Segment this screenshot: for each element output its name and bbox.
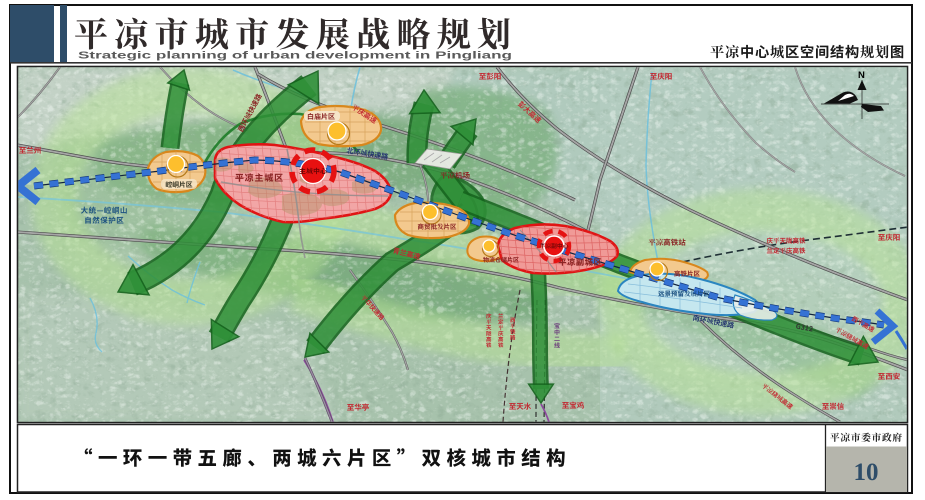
svg-text:10: 10 [854, 459, 879, 486]
svg-text:Strategic planning of urban de: Strategic planning of urban development … [78, 50, 512, 62]
svg-text:N: N [858, 70, 865, 81]
